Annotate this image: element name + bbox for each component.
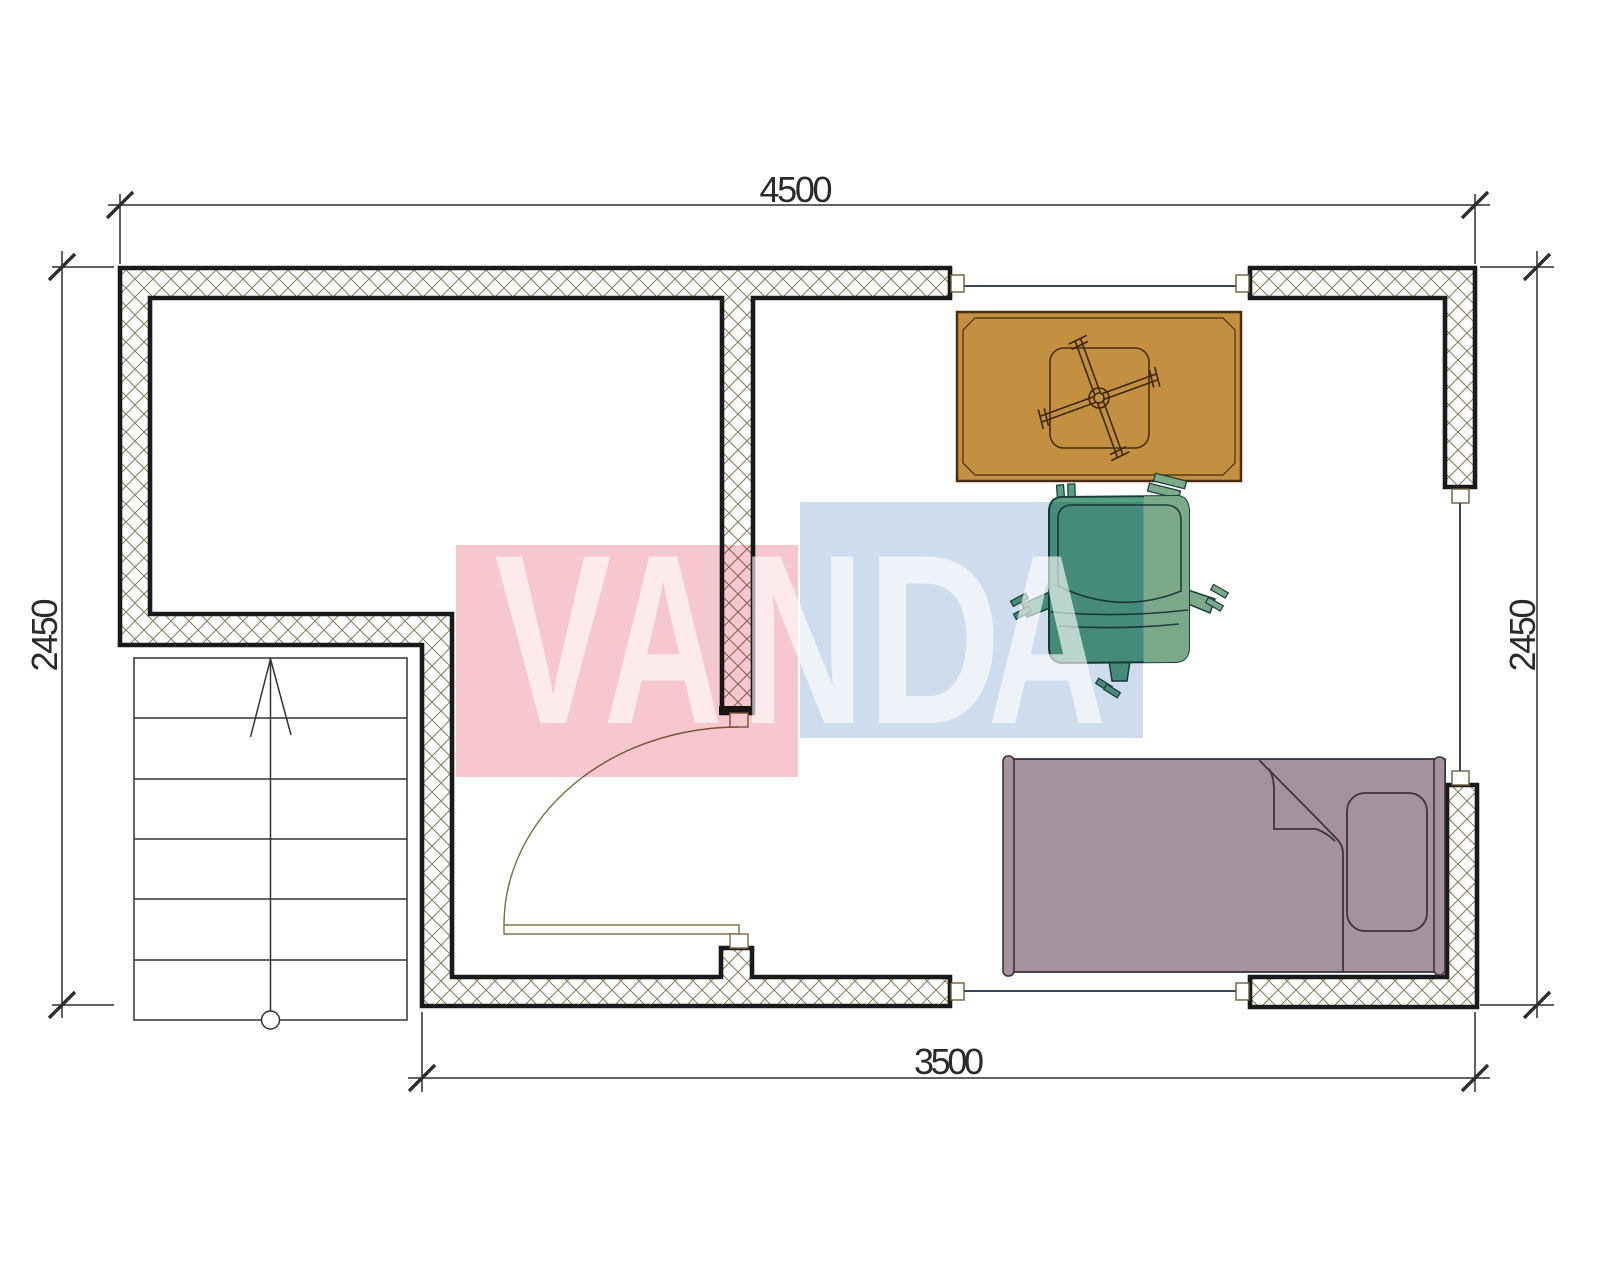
svg-text:D: D bbox=[867, 503, 1002, 774]
svg-text:2450: 2450 bbox=[24, 599, 65, 672]
svg-text:3500: 3500 bbox=[914, 1041, 984, 1082]
svg-text:A: A bbox=[988, 504, 1107, 774]
svg-text:2450: 2450 bbox=[1502, 599, 1543, 672]
svg-text:V: V bbox=[495, 504, 612, 774]
svg-text:N: N bbox=[741, 505, 865, 775]
svg-text:4500: 4500 bbox=[760, 169, 833, 210]
svg-text:A: A bbox=[604, 504, 723, 774]
